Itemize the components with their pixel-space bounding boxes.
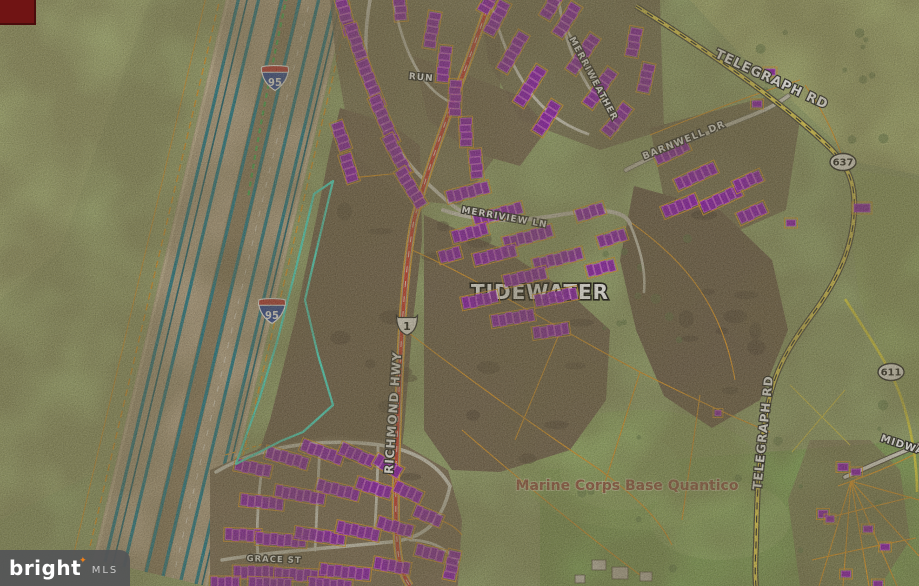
aerial-map-canvas[interactable]: TIDEWATER TELEGRAPH RDTELEGRAPH RDRICHMO… [0,0,919,586]
map-corner-artifact [0,0,36,25]
sparkle-icon: ✦ [79,556,87,566]
brightmls-watermark: bright ✦ MLS [0,550,130,586]
map-viewport[interactable]: TIDEWATER TELEGRAPH RDTELEGRAPH RDRICHMO… [0,0,919,586]
brightmls-suffix: MLS [92,565,119,576]
brightmls-brand: bright [9,558,81,578]
aerial-grain-light [0,0,919,586]
